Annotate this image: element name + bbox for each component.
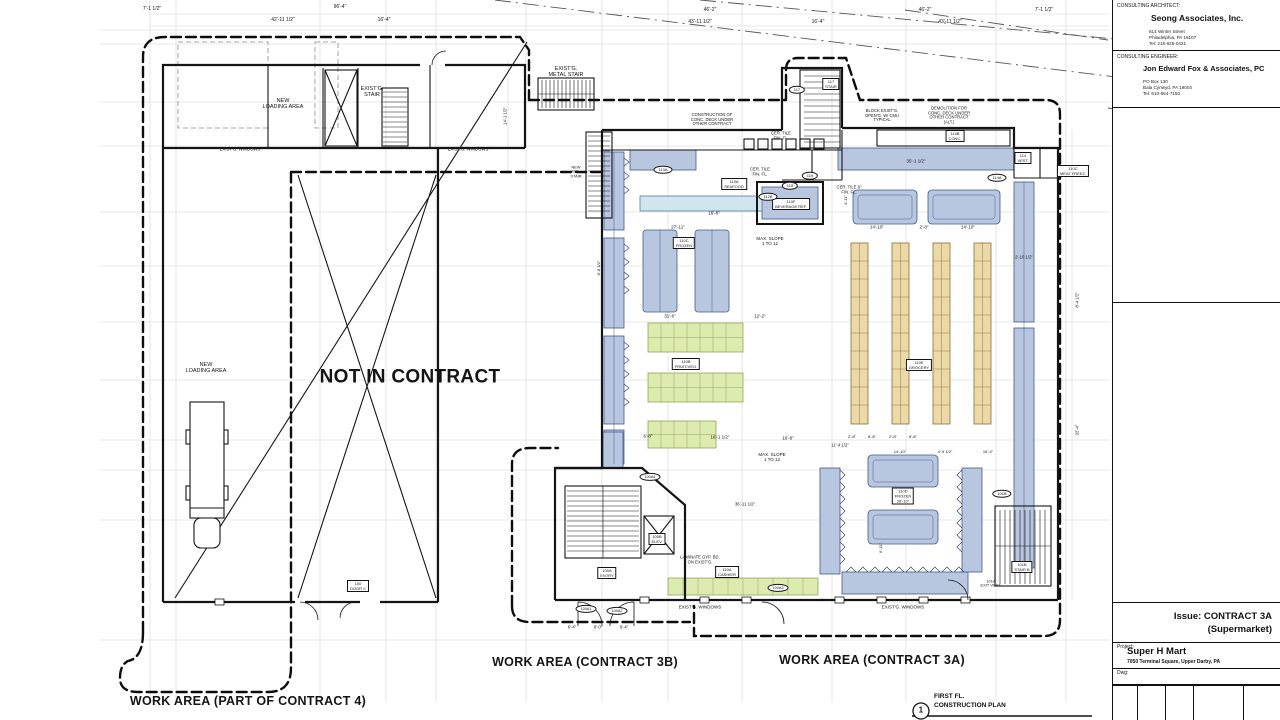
- plan-label: BLOCK EXIST'G. OPEN'G. W/ CMU TYPICAL: [865, 109, 899, 123]
- plan-label: 16'-4": [378, 18, 391, 24]
- plan-label: EXIST'G. WINDOWS: [882, 604, 925, 609]
- plan-label: 114A: [987, 174, 1006, 182]
- plan-label: 100A3: [768, 584, 789, 592]
- plan-label: 101B: [992, 490, 1011, 498]
- engineer-name: Jon Edward Fox & Associates, PC: [1113, 60, 1280, 73]
- plan-label: 114 VEST.: [1014, 152, 1031, 164]
- title-block-engineer: CONSULTING ENGINEER: Jon Edward Fox & As…: [1113, 51, 1280, 108]
- plan-label: 4'-11": [844, 195, 848, 205]
- plan-label: CER. TILE 6" FIN. FL.: [837, 185, 862, 194]
- plan-label: 8'-8 1/2": [597, 261, 601, 276]
- plan-label: 110E GROCERY: [906, 359, 932, 371]
- plan-label: 35'-1 1/2": [907, 158, 926, 163]
- project-address: 7050 Terminal Square, Upper Darby, PA: [1113, 657, 1280, 665]
- plan-label: 11'-4 1/2": [831, 444, 849, 449]
- plan-label: MAX. SLOPE 1 TO 12: [758, 452, 785, 462]
- plan-label: 8'-4 1/2": [1076, 292, 1081, 307]
- plan-label: 100A2: [607, 607, 628, 615]
- plan-label: 110D FROZEN 26'-10": [892, 488, 914, 505]
- plan-label: EXIST'G. STAIR: [361, 86, 384, 98]
- plan-label: CER. TILE FIN. FL.: [771, 131, 791, 140]
- plan-label: 2'-10 1/2": [1015, 256, 1033, 261]
- label-work-area-contract3b: WORK AREA (CONTRACT 3B): [492, 655, 678, 669]
- plan-label: 7'-1 1/2": [1035, 8, 1053, 14]
- plan-label: 101B STAIR B: [1011, 561, 1032, 573]
- plan-label: 46'-2": [704, 8, 717, 14]
- plan-label: 16'-8": [782, 435, 793, 440]
- plan-label: 100B ELEV.: [649, 533, 666, 545]
- title-block-architect: CONSULTING ARCHITECT: Seong Associates, …: [1113, 0, 1280, 51]
- plan-label: CER. TILE FIN. FL.: [750, 167, 770, 176]
- plan-label: 110F BEVERAGE REF.: [772, 198, 810, 210]
- plan-label: 6'-11": [879, 543, 883, 553]
- plan-label: 16'-1 1/2": [711, 434, 730, 439]
- issue-line1: Issue: CONTRACT 3A: [1113, 611, 1272, 624]
- plan-label: 43'-11 1/2": [938, 20, 962, 26]
- plan-label: CONSTRUCTION OF CONC. DECK UNDER OTHER C…: [691, 113, 733, 127]
- drawing-title-line1: FIRST FL.: [934, 692, 1006, 701]
- plan-label: 6'-4": [620, 626, 628, 631]
- construction-drawing-sheet: 7'-1 1/2"96'-4"42'-11 1/2"16'-4"46'-2"46…: [0, 0, 1280, 720]
- engineer-addr3: Tel: 610-664-7150: [1143, 91, 1280, 97]
- plan-label: 100A1: [576, 605, 597, 613]
- plan-label: 2'-8": [848, 435, 856, 439]
- label-work-area-contract3a: WORK AREA (CONTRACT 3A): [779, 653, 965, 667]
- plan-label: 100A4: [640, 473, 661, 481]
- plan-label: 117: [789, 86, 805, 94]
- plan-label: EXIST'G. WINDOWS: [448, 148, 489, 153]
- plan-label: 114B CONC.: [946, 130, 965, 142]
- issue-line2: (Supermarket): [1113, 624, 1272, 637]
- plan-label: 119: [802, 172, 818, 180]
- plan-label: 6'-8": [644, 433, 653, 438]
- plan-label: LAMINATE GYP. BD. ON EXIST'G.: [680, 555, 719, 564]
- plan-label: 113A: [653, 166, 672, 174]
- title-block-project: Project: Super H Mart 7050 Terminal Squa…: [1113, 643, 1280, 669]
- plan-label: 6'-4": [568, 626, 576, 631]
- architect-label: CONSULTING ARCHITECT:: [1113, 0, 1280, 9]
- plan-label: 14'-1 1/2": [504, 107, 509, 125]
- plan-label: NEW LOADING AREA: [263, 98, 304, 110]
- plan-label: 46'-2": [919, 8, 932, 14]
- plan-label: 14'-10": [961, 224, 975, 229]
- plan-label: 12'-2": [754, 313, 765, 318]
- plan-label: 27'-11": [671, 224, 685, 229]
- plan-label: 100 DOOR C: [347, 580, 369, 592]
- title-block-empty-1: [1113, 108, 1280, 303]
- plan-label: 117 STAIR: [822, 78, 839, 90]
- plan-label: 16'-4": [983, 450, 993, 454]
- plan-label: 110C FROZEN: [673, 237, 695, 249]
- plan-label: 16'-8": [708, 210, 719, 215]
- plan-label: 8'-8": [868, 435, 876, 439]
- label-not-in-contract: NOT IN CONTRACT: [320, 366, 501, 387]
- dwg-label: Dwg:: [1113, 669, 1280, 676]
- plan-label: 4'-9 1/2": [938, 450, 953, 454]
- plan-label: 8'-0": [594, 626, 602, 631]
- plan-label: 32'-4": [1076, 425, 1081, 436]
- plan-label: 96'-4": [334, 5, 347, 11]
- plan-label: 115: [782, 182, 798, 190]
- plan-label: EXIST'G. WINDOWS: [679, 604, 722, 609]
- plan-label: 100A ENTRY: [597, 567, 616, 579]
- plan-label: 110A CASHIER: [715, 566, 739, 578]
- plan-label: 7'-1 1/2": [143, 7, 161, 13]
- plan-label: 113A SEAFOOD: [721, 178, 747, 190]
- plan-label: MAX. SLOPE 1 TO 12: [756, 236, 783, 246]
- plan-label-layer: 7'-1 1/2"96'-4"42'-11 1/2"16'-4"46'-2"46…: [0, 0, 1280, 720]
- title-block: CONSULTING ARCHITECT: Seong Associates, …: [1112, 0, 1280, 720]
- plan-label: EXIST'G. METAL STAIR: [548, 66, 583, 78]
- engineer-label: CONSULTING ENGINEER:: [1113, 51, 1280, 60]
- architect-name: Seong Associates, Inc.: [1113, 9, 1280, 23]
- plan-label: DEMOLITION FOR CONC. DECK UNDER OTHER CO…: [928, 107, 970, 126]
- title-block-grid: [1113, 685, 1280, 720]
- plan-label: 110C MEAT FREEZ.: [1057, 165, 1089, 177]
- plan-label: NEW MTL. STAIR: [570, 165, 581, 178]
- plan-label: EXIST'G. WINDOWS: [220, 148, 261, 153]
- plan-label: 36'-11 1/2": [735, 503, 755, 508]
- plan-label: 14'-10": [870, 224, 884, 229]
- project-name: Super H Mart: [1113, 645, 1280, 657]
- drawing-number-bubble: 1: [919, 707, 924, 716]
- plan-label: 14'-10": [894, 450, 906, 454]
- plan-label: NEW LOADING AREA: [186, 362, 227, 374]
- title-block-dwg: Dwg:: [1113, 669, 1280, 685]
- plan-label: 2'-8": [889, 435, 897, 439]
- drawing-title-line2: CONSTRUCTION PLAN: [934, 701, 1006, 710]
- plan-label: 43'-11 1/2": [688, 20, 712, 26]
- plan-label: 110B FRUIT/VEG.: [672, 358, 700, 370]
- label-work-area-contract4: WORK AREA (PART OF CONTRACT 4): [130, 694, 366, 708]
- title-block-issue: Issue: CONTRACT 3A (Supermarket): [1113, 603, 1280, 643]
- plan-label: 101A EXIT VEST.: [980, 580, 1001, 589]
- plan-label: 2'-8": [920, 224, 929, 229]
- plan-label: 42'-11 1/2": [271, 18, 295, 24]
- plan-label: 8'-8": [909, 435, 917, 439]
- plan-label: 31'-6": [664, 313, 675, 318]
- plan-label: 16'-4": [812, 20, 825, 26]
- architect-addr3: Tel: 215-925-0421: [1149, 41, 1280, 47]
- title-block-empty-2: [1113, 303, 1280, 603]
